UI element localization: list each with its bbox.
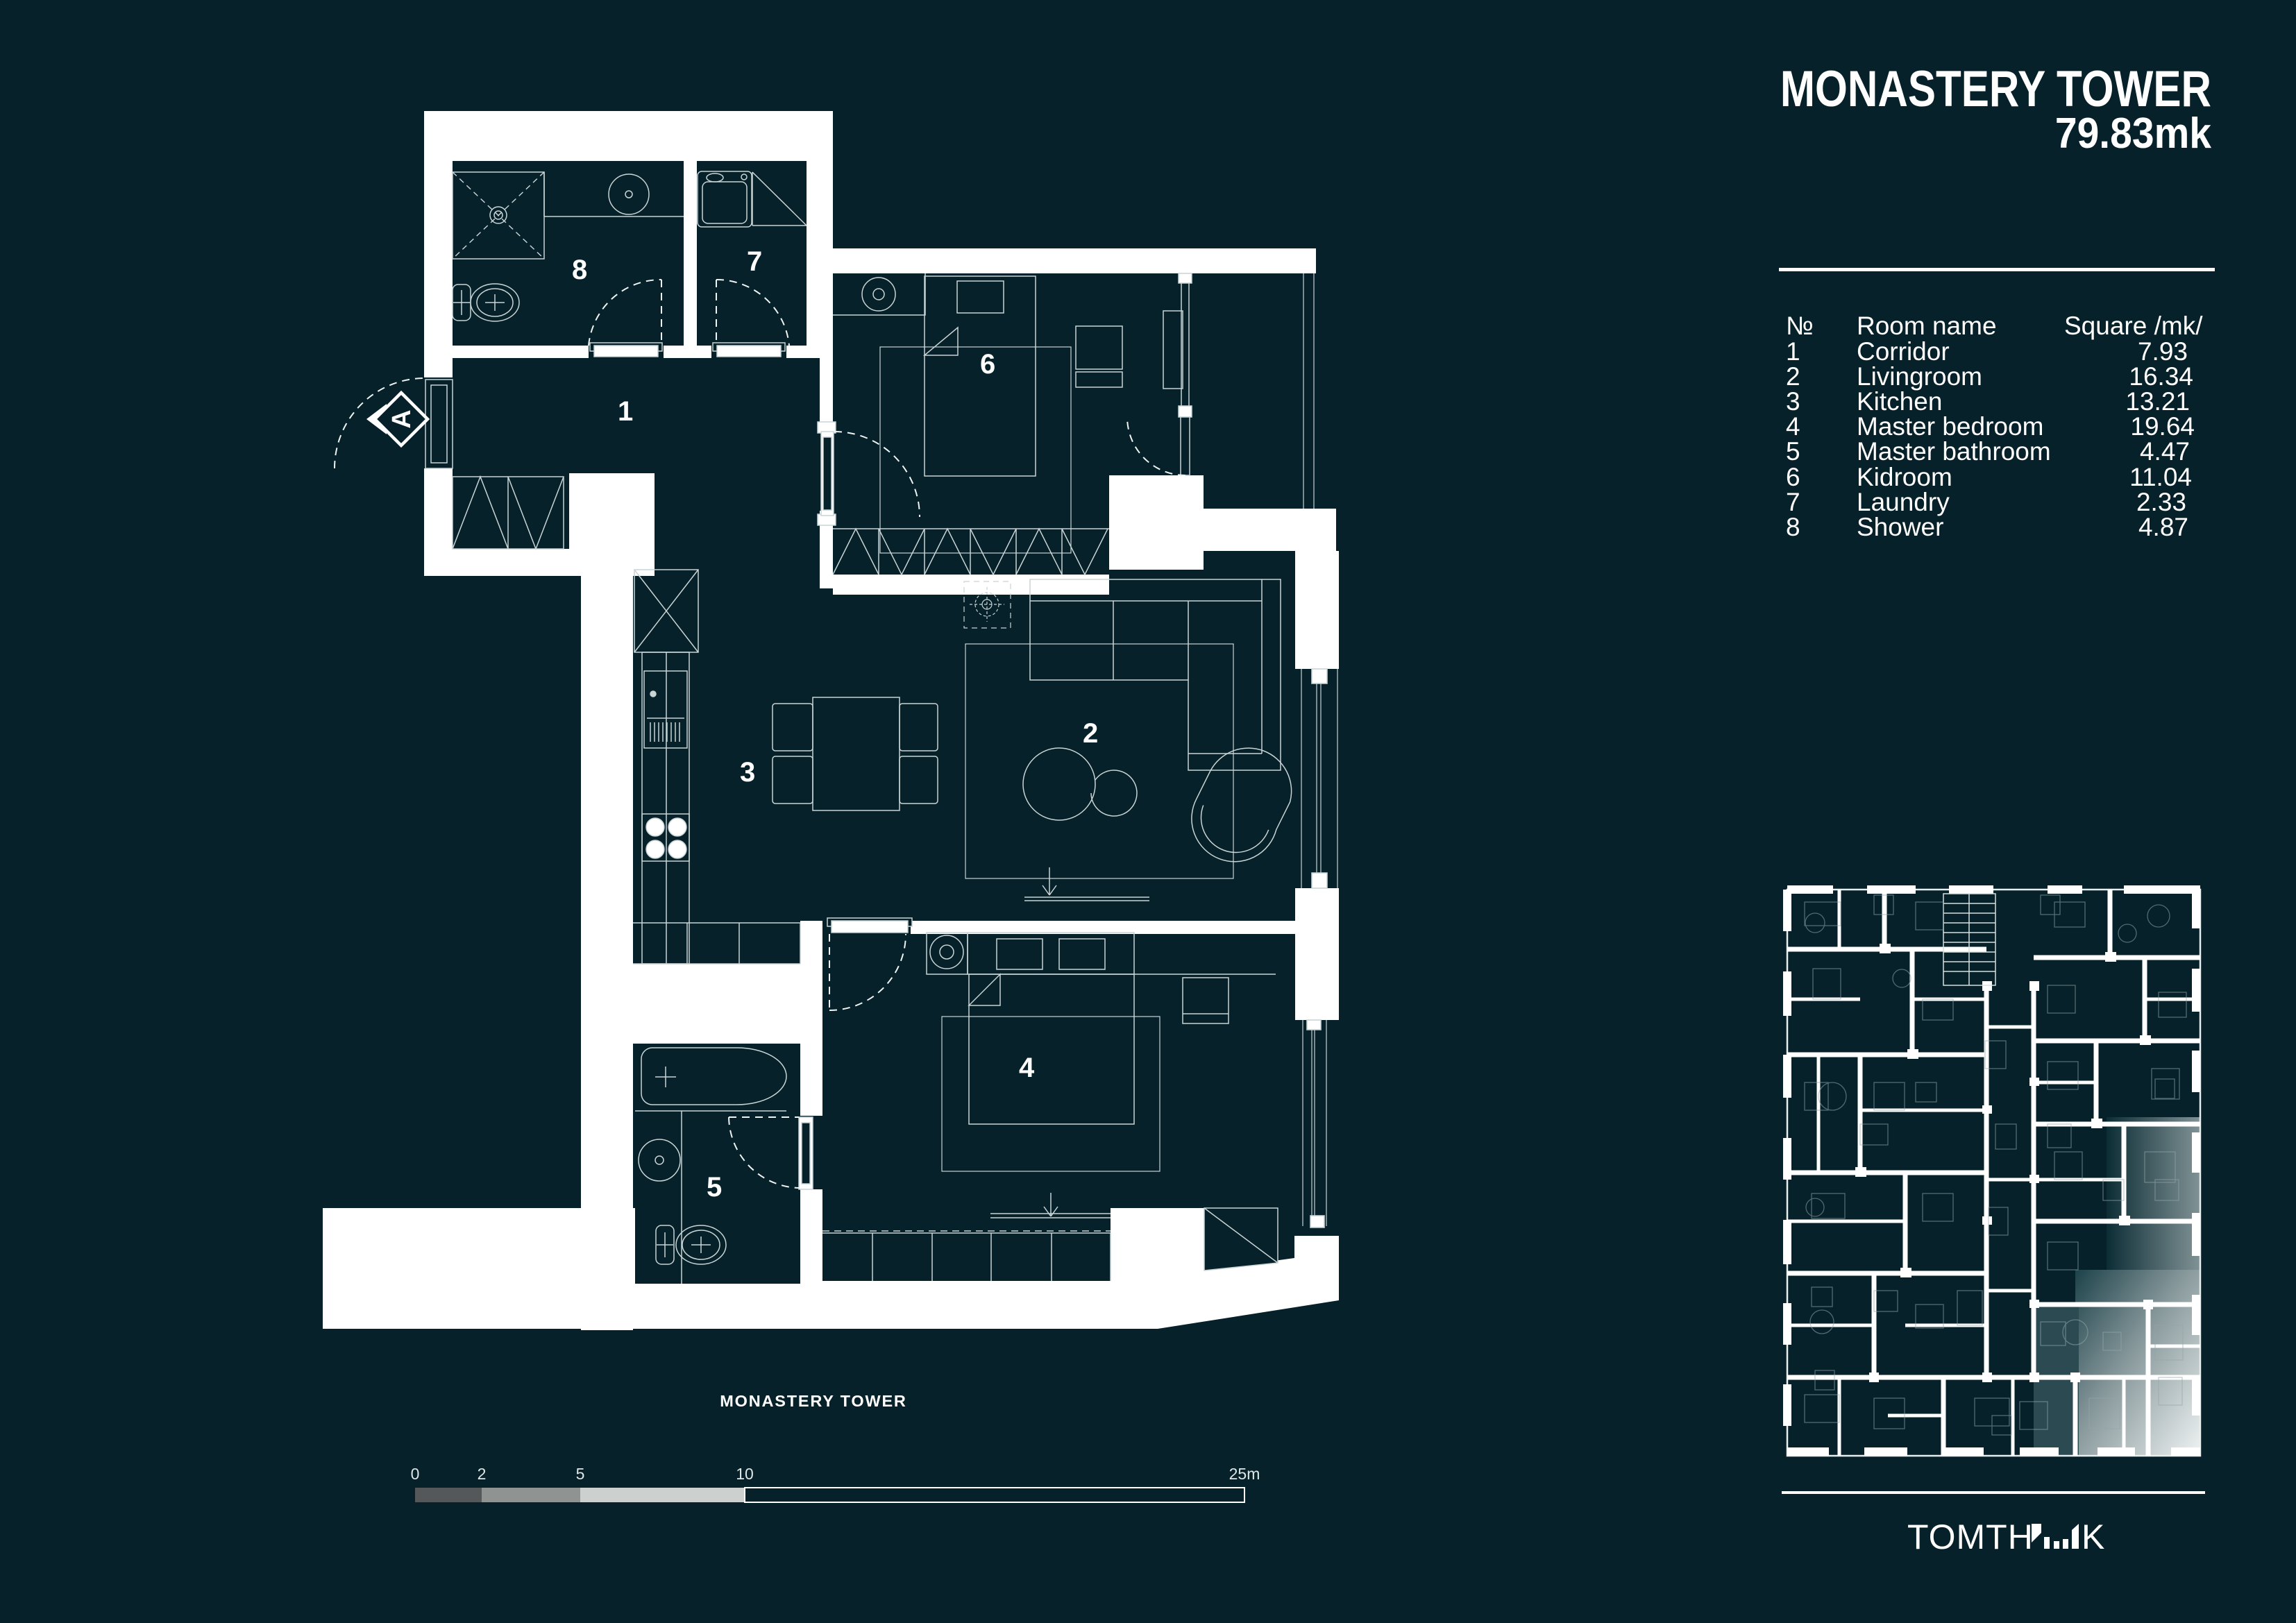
svg-text:5: 5 <box>707 1172 722 1203</box>
svg-text:19.64: 19.64 <box>2130 412 2195 441</box>
svg-text:1: 1 <box>618 396 633 427</box>
svg-text:2: 2 <box>478 1465 487 1483</box>
svg-text:13.21: 13.21 <box>2125 387 2190 416</box>
svg-text:6: 6 <box>980 349 995 380</box>
svg-text:2: 2 <box>1786 362 1800 391</box>
svg-text:A: A <box>387 409 416 428</box>
svg-text:Laundry: Laundry <box>1857 488 1950 516</box>
svg-text:Master bedroom: Master bedroom <box>1857 412 2043 441</box>
svg-text:Livingroom: Livingroom <box>1857 362 1982 391</box>
svg-text:7.93: 7.93 <box>2138 337 2188 366</box>
svg-text:8: 8 <box>1786 513 1800 541</box>
svg-text:3: 3 <box>1786 387 1800 416</box>
svg-text:4.87: 4.87 <box>2138 513 2188 541</box>
svg-text:4.47: 4.47 <box>2140 437 2190 466</box>
svg-text:2: 2 <box>1083 718 1098 749</box>
svg-text:8: 8 <box>572 255 587 285</box>
svg-text:79.83mk: 79.83mk <box>2055 109 2212 158</box>
svg-text:Shower: Shower <box>1857 513 1943 541</box>
svg-text:2.33: 2.33 <box>2136 488 2186 516</box>
svg-text:5: 5 <box>1786 437 1800 466</box>
svg-text:25m: 25m <box>1229 1465 1260 1483</box>
svg-text:4: 4 <box>1019 1053 1035 1083</box>
svg-text:Kitchen: Kitchen <box>1857 387 1942 416</box>
svg-text:10: 10 <box>736 1465 754 1483</box>
svg-text:№: № <box>1786 312 1814 340</box>
svg-text:11.04: 11.04 <box>2129 463 2192 491</box>
svg-text:Master bathroom: Master bathroom <box>1857 437 2051 466</box>
svg-text:Square /mk/: Square /mk/ <box>2064 312 2203 340</box>
svg-text:5: 5 <box>576 1465 585 1483</box>
svg-text:4: 4 <box>1786 412 1800 441</box>
svg-text:Room name: Room name <box>1857 312 1997 340</box>
svg-text:Kidroom: Kidroom <box>1857 463 1952 491</box>
svg-text:K: K <box>2082 1518 2104 1556</box>
svg-text:0: 0 <box>411 1465 420 1483</box>
svg-text:3: 3 <box>740 757 755 788</box>
svg-text:TOMTH: TOMTH <box>1907 1518 2034 1556</box>
svg-text:7: 7 <box>747 246 762 277</box>
svg-text:6: 6 <box>1786 463 1800 491</box>
svg-text:1: 1 <box>1786 337 1800 366</box>
svg-text:16.34: 16.34 <box>2129 362 2193 391</box>
svg-text:MONASTERY TOWER: MONASTERY TOWER <box>720 1392 906 1410</box>
svg-text:7: 7 <box>1786 488 1800 516</box>
svg-text:Corridor: Corridor <box>1857 337 1950 366</box>
